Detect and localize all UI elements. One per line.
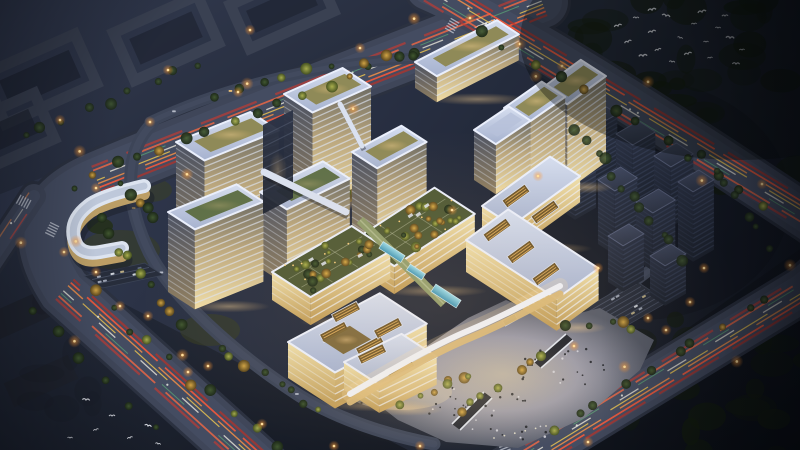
light-bloom-and-vignette xyxy=(0,0,800,450)
hospital-campus-night-aerial xyxy=(0,0,800,450)
architectural-rendering-stage xyxy=(0,0,800,450)
